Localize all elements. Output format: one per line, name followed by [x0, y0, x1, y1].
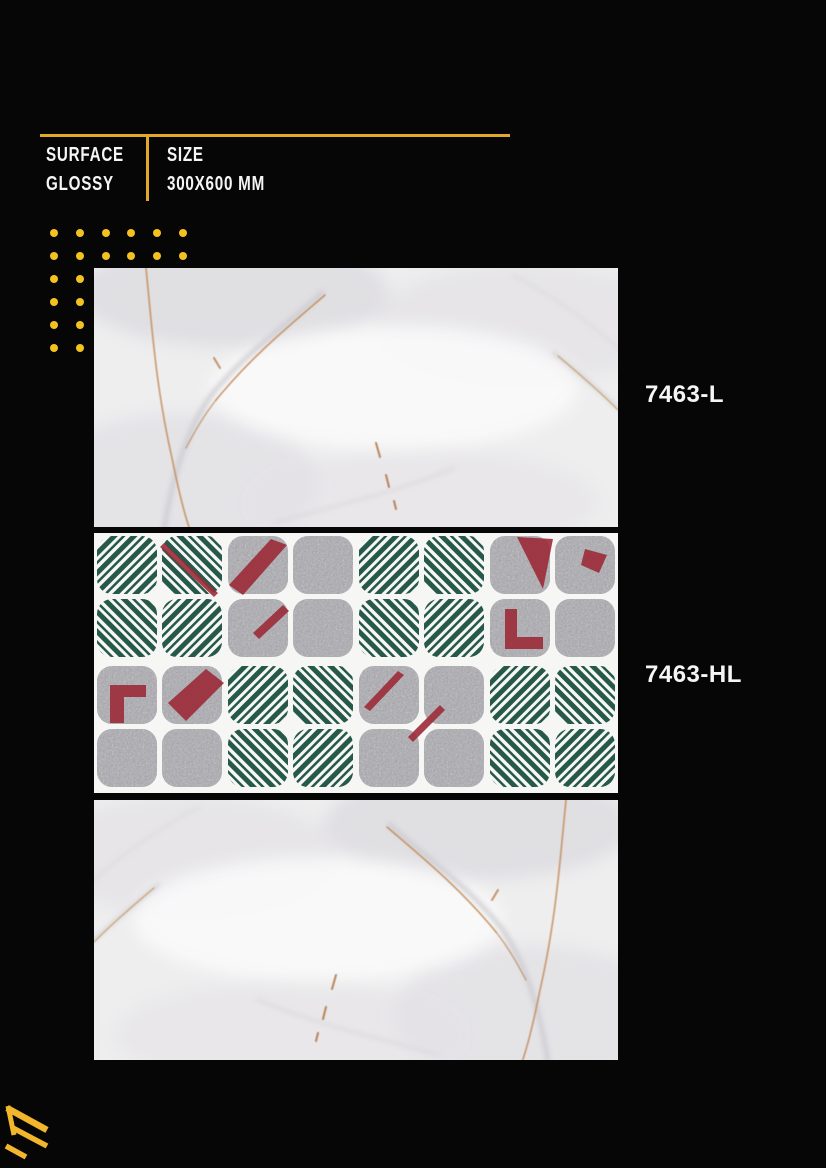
surface-spec: SURFACE GLOSSY — [46, 141, 124, 199]
dot — [76, 298, 84, 306]
dot — [50, 298, 58, 306]
dot — [50, 252, 58, 260]
brand-logo-icon — [4, 1101, 64, 1163]
dot — [102, 252, 110, 260]
dot — [102, 229, 110, 237]
surface-label: SURFACE — [46, 141, 124, 170]
product-code-7463-hl: 7463-HL — [645, 661, 742, 689]
dot — [76, 321, 84, 329]
dot — [179, 229, 187, 237]
dot — [76, 252, 84, 260]
dot — [50, 344, 58, 352]
dot — [127, 229, 135, 237]
header-gold-rule — [40, 134, 510, 137]
tile-image-7463-hl — [94, 533, 618, 793]
surface-value: GLOSSY — [46, 170, 124, 199]
tile-image-7463-l-bottom — [94, 800, 618, 1060]
size-spec: SIZE 300X600 MM — [167, 141, 265, 199]
product-code-7463-l: 7463-L — [645, 381, 724, 409]
dot — [50, 275, 58, 283]
dot — [76, 275, 84, 283]
tile-catalog-page: SURFACE GLOSSY SIZE 300X600 MM 7463-L 74… — [0, 0, 826, 1168]
dot — [76, 344, 84, 352]
size-label: SIZE — [167, 141, 265, 170]
dot — [153, 252, 161, 260]
spec-divider — [146, 135, 149, 201]
dot — [50, 321, 58, 329]
highlighter-pattern-svg — [94, 533, 618, 793]
dot — [76, 229, 84, 237]
size-value: 300X600 MM — [167, 170, 265, 199]
tile-image-7463-l — [94, 268, 618, 527]
dot — [50, 229, 58, 237]
dot — [179, 252, 187, 260]
dot — [127, 252, 135, 260]
dot — [153, 229, 161, 237]
